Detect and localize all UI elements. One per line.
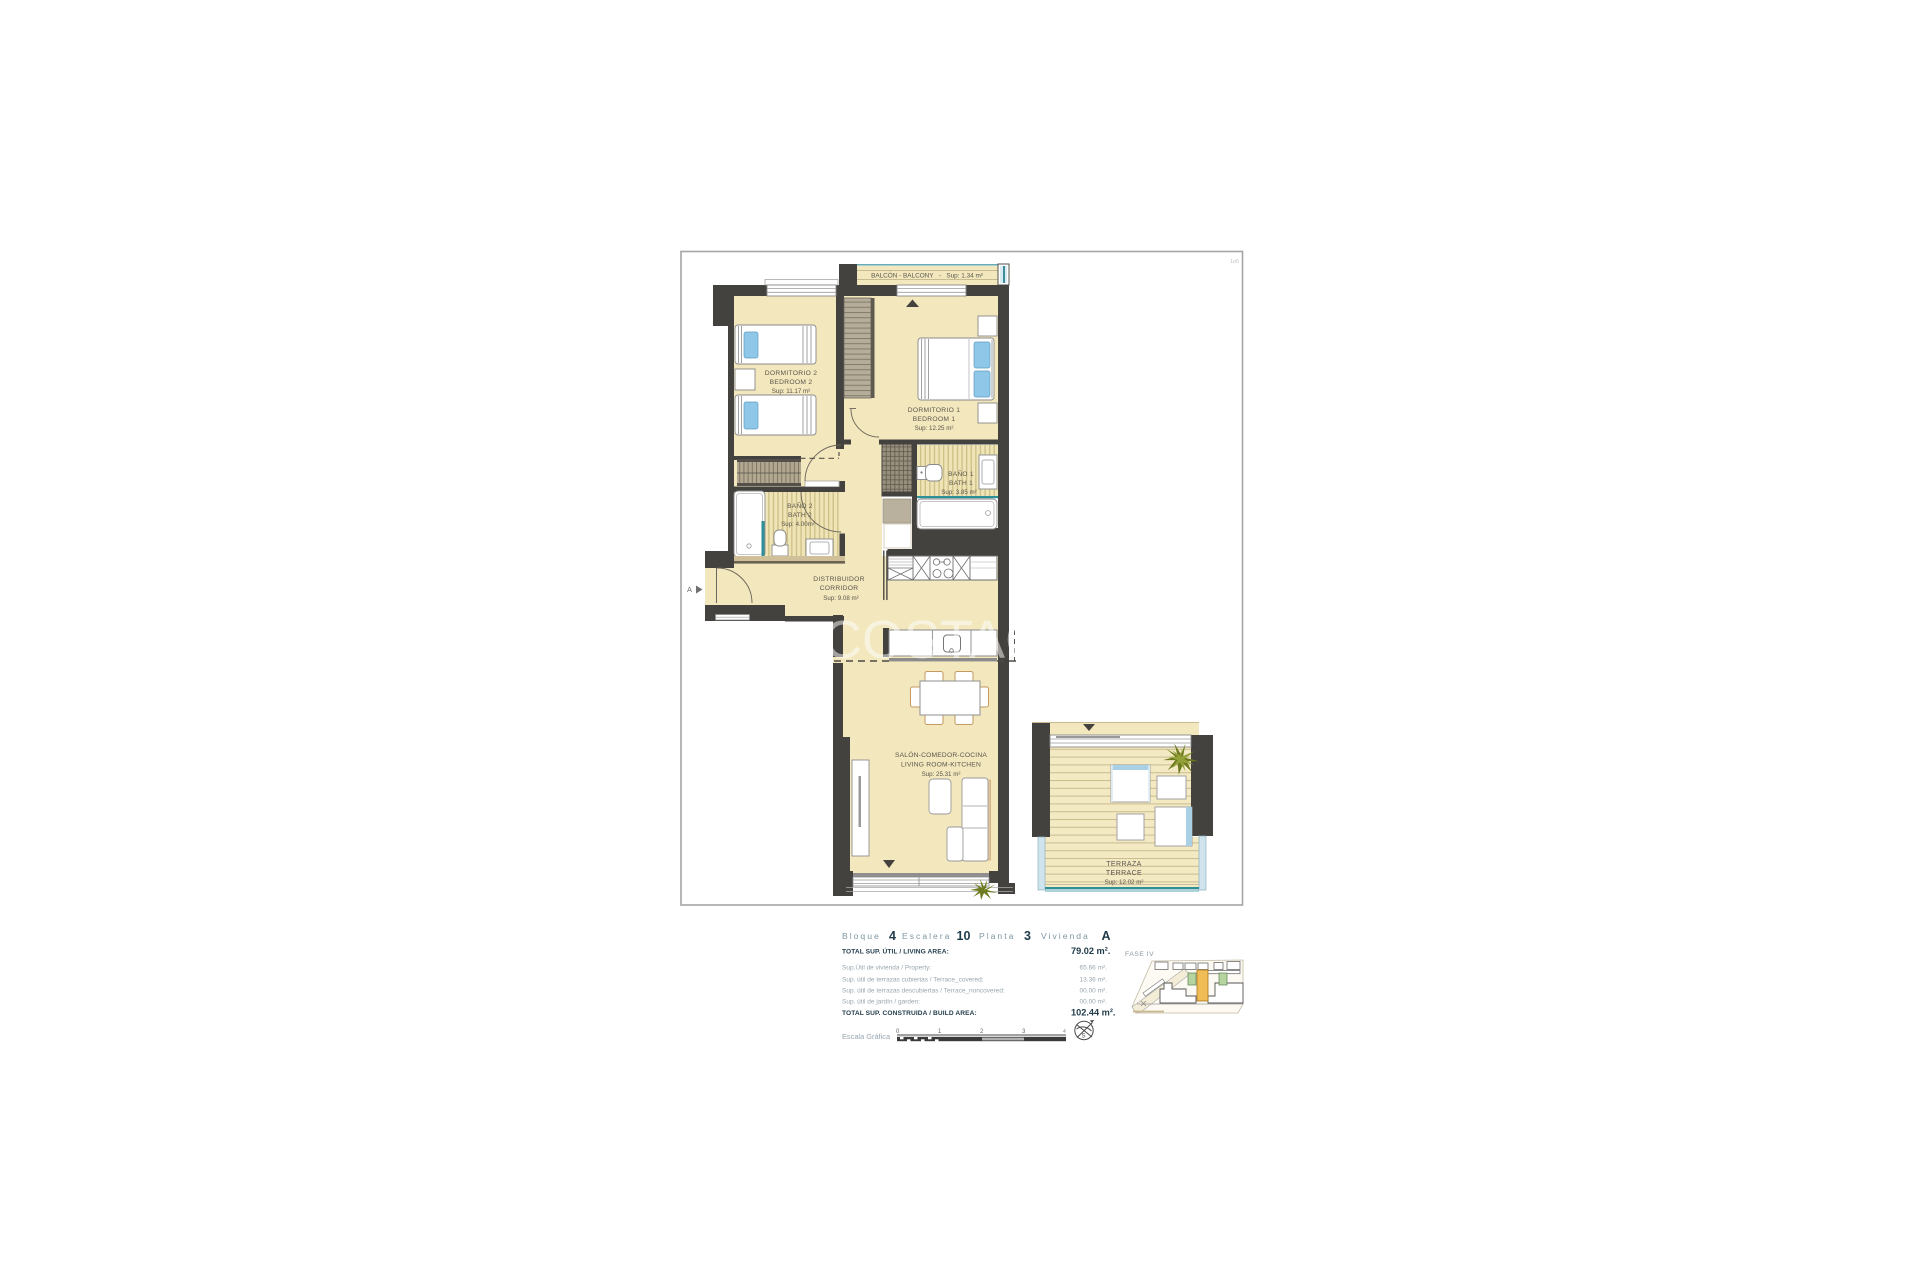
svg-text:3: 3 [1024,929,1031,943]
svg-text:FASE IV: FASE IV [1125,951,1154,958]
svg-text:BEDROOM 2: BEDROOM 2 [770,379,813,386]
svg-text:TOTAL SUP. ÚTIL / LIVING AREA:: TOTAL SUP. ÚTIL / LIVING AREA: [842,947,949,956]
svg-text:Sup. útil de terrazas descubie: Sup. útil de terrazas descubiertas / Ter… [842,988,1005,995]
svg-text:Bloque: Bloque [842,931,881,941]
svg-text:CORRIDOR: CORRIDOR [820,585,859,592]
svg-text:Sup: 12.25 m²: Sup: 12.25 m² [915,425,954,432]
svg-text:TERRACE: TERRACE [1106,870,1142,877]
svg-text:79.02 m².: 79.02 m². [1071,946,1110,956]
svg-text:BAÑO 2: BAÑO 2 [787,501,813,510]
svg-text:BALCÓN - BALCONY - Sup: 1.: BALCÓN - BALCONY - Sup: 1.34 m² [871,271,983,280]
svg-text:Escala Gráfica: Escala Gráfica [842,1032,891,1041]
svg-text:3: 3 [1022,1029,1026,1035]
svg-text:BAÑO 1: BAÑO 1 [948,469,974,478]
svg-text:S: S [1082,1034,1086,1040]
svg-text:BEDROOM 1: BEDROOM 1 [913,416,956,423]
svg-text:65.66 m².: 65.66 m². [1080,965,1108,972]
svg-text:10: 10 [957,929,971,943]
svg-text:Sup: 4.00m²: Sup: 4.00m² [781,521,815,528]
svg-text:1o5: 1o5 [1230,259,1239,265]
svg-text:TERRAZA: TERRAZA [1106,861,1141,868]
svg-text:00.00 m².: 00.00 m². [1080,988,1108,995]
svg-text:102.44 m².: 102.44 m². [1071,1008,1115,1018]
svg-text:00.00 m².: 00.00 m². [1080,999,1108,1006]
svg-text:Sup: 11.17 m²: Sup: 11.17 m² [772,388,810,395]
svg-text:COSTACALIDA: COSTACALIDA [823,610,1200,670]
svg-text:2: 2 [980,1029,984,1035]
svg-text:4: 4 [889,929,896,943]
svg-text:DISTRIBUIDOR: DISTRIBUIDOR [813,576,865,583]
svg-text:1: 1 [938,1029,942,1035]
svg-text:Sup: 12.02 m²: Sup: 12.02 m² [1105,879,1144,886]
svg-text:DORMITORIO 1: DORMITORIO 1 [908,407,961,414]
svg-text:A: A [1102,929,1111,943]
svg-text:4: 4 [1063,1029,1066,1035]
svg-text:A: A [687,585,692,594]
svg-text:0: 0 [896,1029,900,1035]
svg-text:Sup: 25.31 m²: Sup: 25.31 m² [922,771,961,778]
svg-text:LIVING ROOM-KITCHEN: LIVING ROOM-KITCHEN [901,762,981,769]
svg-text:Planta: Planta [979,931,1015,941]
svg-text:Sup. útil de jardín / garden:: Sup. útil de jardín / garden: [842,999,920,1006]
svg-text:Sup: 3.85 m²: Sup: 3.85 m² [941,489,976,496]
svg-text:TOTAL SUP. CONSTRUIDA / BUILD: TOTAL SUP. CONSTRUIDA / BUILD AREA: [842,1010,977,1017]
svg-text:BATH 1: BATH 1 [949,480,973,487]
svg-text:13.36 m².: 13.36 m². [1080,977,1108,984]
svg-text:SALÓN-COMEDOR-COCINA: SALÓN-COMEDOR-COCINA [895,750,987,759]
svg-text:Sup.Útil de vivienda / Propert: Sup.Útil de vivienda / Property: [842,963,931,972]
svg-text:Escalera: Escalera [902,931,951,941]
svg-text:Sup. útil de terrazas cubierta: Sup. útil de terrazas cubiertas / Terrac… [842,977,984,984]
svg-text:Vivienda: Vivienda [1041,931,1090,941]
svg-text:DORMITORIO 2: DORMITORIO 2 [765,370,818,377]
svg-text:Sup: 9.08 m²: Sup: 9.08 m² [823,595,858,602]
